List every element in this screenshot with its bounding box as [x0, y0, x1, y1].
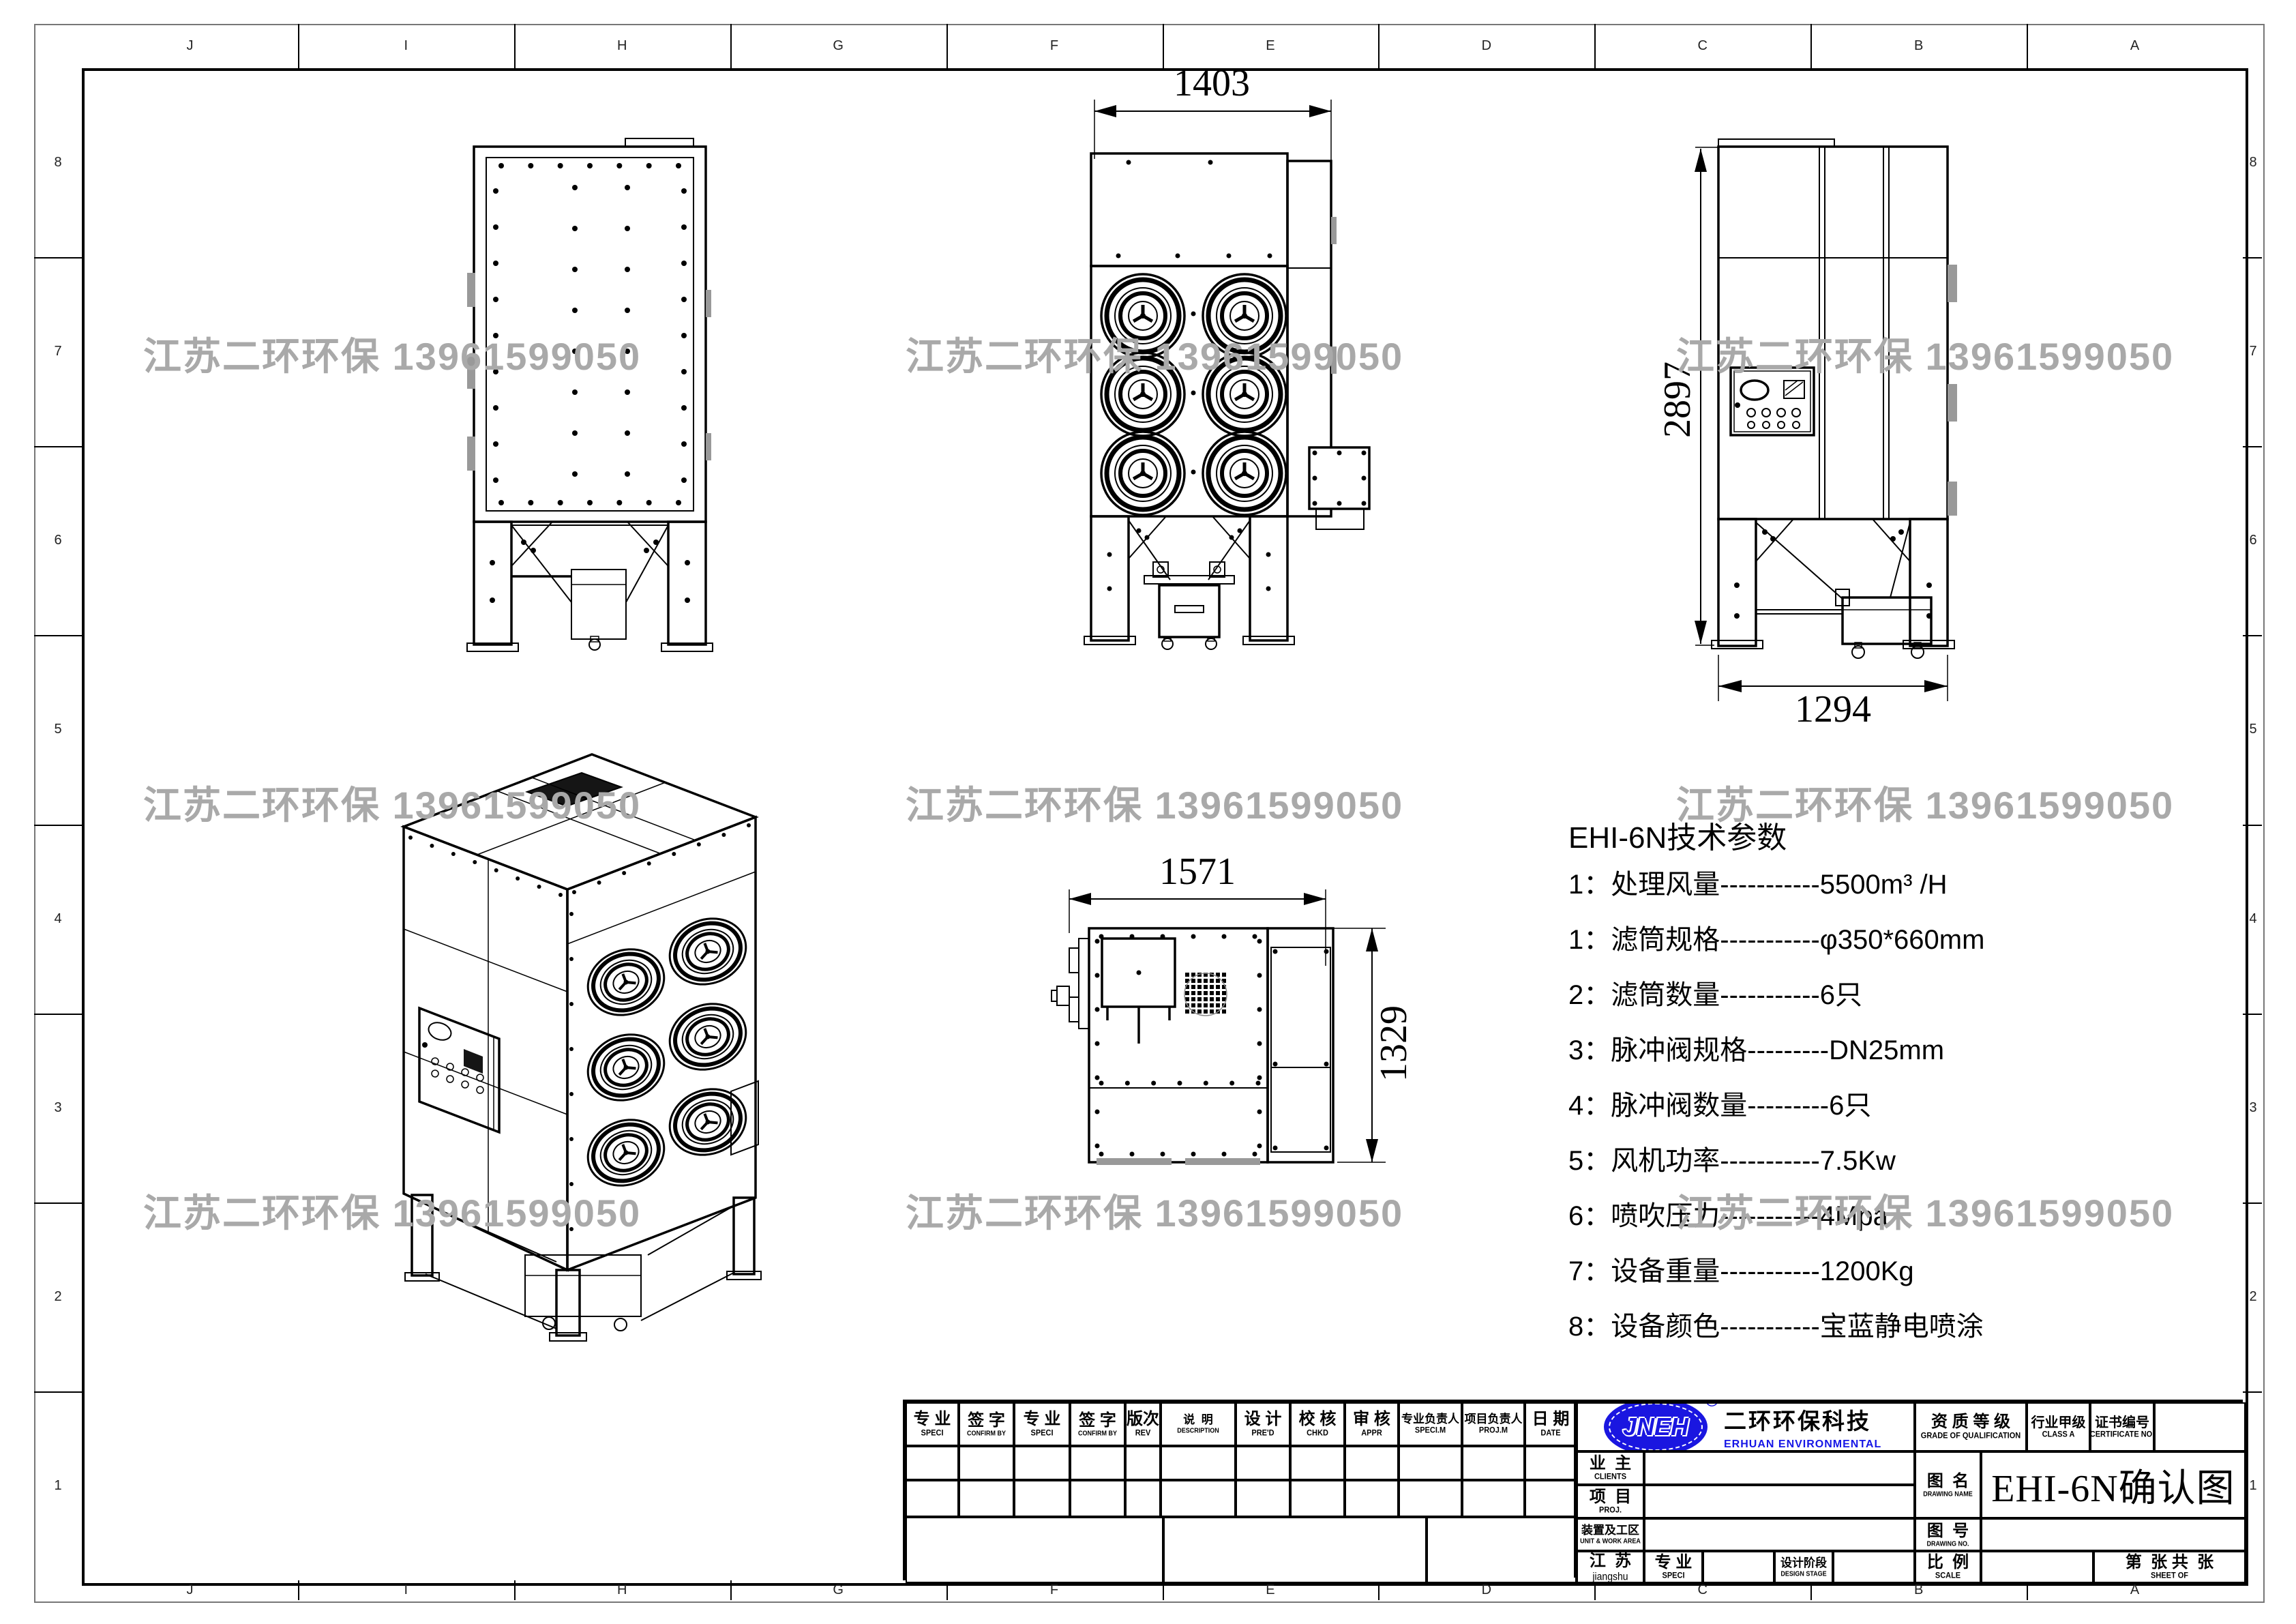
zone-number-left: 8 [34, 68, 82, 257]
rev-col-header: 审 核APPR [1345, 1402, 1399, 1446]
top-dimension-1329 [1272, 928, 1386, 1162]
rev-empty-cell [959, 1446, 1014, 1480]
watermark-text: 江苏二环环保 13961599050 [906, 775, 1403, 830]
iso-control-panel [419, 1008, 499, 1132]
zone-tick [2027, 1580, 2028, 1600]
project-value [1644, 1485, 1915, 1518]
zone-letter-bottom: I [298, 1581, 514, 1599]
zone-letter-bottom: B [1810, 1581, 2027, 1599]
gauge-icon [1741, 381, 1768, 400]
zone-letter-bottom: E [1163, 1581, 1379, 1599]
zone-number-right: 1 [2244, 1391, 2262, 1580]
zone-number-left: 3 [34, 1014, 82, 1202]
zone-number-right: 6 [2244, 446, 2262, 635]
registered-mark-icon: ® [1705, 1402, 1718, 1411]
qualification-cell: 资 质 等 级 GRADE OF QUALIFICATION [1915, 1402, 2027, 1451]
zone-number-right: 2 [2244, 1202, 2262, 1391]
zone-number-left: 4 [34, 825, 82, 1014]
rear-top-tab [625, 138, 694, 147]
zone-letter-bottom: J [82, 1581, 298, 1599]
dim-front-width: 1403 [1130, 63, 1294, 104]
top-main-body [1089, 928, 1268, 1162]
rev-empty-cell [1525, 1480, 1577, 1517]
top-right-column [1268, 928, 1333, 1162]
speci-value [1703, 1551, 1774, 1583]
design-stage-label: 设计阶段 DESIGN STAGE [1774, 1551, 1833, 1583]
rev-col-en: CHKD [1307, 1428, 1328, 1438]
zone-tick [298, 24, 299, 68]
drawing-no-label: 图 号 DRAWING NO. [1915, 1518, 1981, 1551]
rear-legs [467, 522, 713, 651]
zone-tick [2243, 825, 2262, 826]
rev-col-en: REV [1135, 1428, 1151, 1438]
iso-filter-face [660, 1078, 756, 1166]
rev-empty-cell [906, 1480, 959, 1517]
rev-col-en: CONFIRM BY [967, 1429, 1006, 1436]
zone-number-left: 7 [34, 257, 82, 446]
zone-letter-bottom: C [1594, 1581, 1810, 1599]
watermark-text: 江苏二环环保 13961599050 [1676, 1183, 2174, 1238]
rev-col-header: 校 核CHKD [1290, 1402, 1345, 1446]
rev-col-header: 签 字CONFIRM BY [959, 1402, 1014, 1446]
zone-tick [34, 1014, 82, 1015]
rear-dust-bin [571, 570, 626, 650]
drawing-name-value: EHI-6N确认图 [1981, 1451, 2246, 1518]
side-hinge-tabs [1948, 265, 1957, 516]
signature-cell [1427, 1517, 1577, 1583]
speci-label: 专 业 SPECI [1644, 1551, 1703, 1583]
zone-tick [1594, 24, 1596, 68]
zone-letter-bottom: D [1378, 1581, 1594, 1599]
tech-param-line: 5：风机功率-----------7.5Kw [1568, 1138, 1896, 1178]
signature-cell [1163, 1517, 1427, 1583]
zone-tick [730, 1580, 732, 1600]
zone-number-left: 6 [34, 446, 82, 635]
signature-cell [906, 1517, 1163, 1583]
zone-number-left: 5 [34, 635, 82, 824]
company-logo: JNEH ® [1604, 1402, 1708, 1451]
class-a-cell: 行业甲级 CLASS A [2027, 1402, 2090, 1451]
side-drawer-bin [1836, 589, 1931, 658]
drawing-sheet: JJIIHHGGFFEEDDCCBBAA8877665544332211 江苏二… [0, 0, 2296, 1624]
rev-col-header: 专 业SPECI [906, 1402, 959, 1446]
zone-letter-top: J [82, 26, 298, 65]
zone-number-left: 2 [34, 1202, 82, 1391]
tech-param-line: 1：滤筒规格-----------φ350*660mm [1568, 917, 1984, 957]
rev-col-zh: 校 核 [1299, 1411, 1337, 1428]
zone-number-right: 8 [2244, 68, 2262, 257]
zone-tick [1163, 1580, 1164, 1600]
rev-col-zh: 设 计 [1244, 1411, 1282, 1428]
filter-cartridge-face [1101, 432, 1184, 515]
bolt-dots [1734, 529, 1932, 619]
rev-empty-cell [1462, 1480, 1525, 1517]
dim-top-depth: 1329 [1373, 962, 1414, 1125]
tech-param-line: 4：脉冲阀数量---------6只 [1568, 1083, 1871, 1123]
rev-col-en: DESCRIPTION [1177, 1427, 1219, 1434]
rev-col-zh: 专 业 [914, 1411, 951, 1428]
rev-empty-cell [1462, 1446, 1525, 1480]
company-name-en: ERHUAN ENVIRONMENTAL [1724, 1438, 1881, 1451]
zone-tick [730, 24, 732, 68]
watermark-text: 江苏二环环保 13961599050 [906, 326, 1403, 381]
company-name-zh: 二环环保科技 [1724, 1403, 1871, 1436]
clients-label: 业 主 CLIENTS [1577, 1451, 1644, 1485]
region-cell: 江 苏 jiangshu [1577, 1551, 1644, 1583]
rev-col-header: 版次REV [1125, 1402, 1161, 1446]
zone-letter-bottom: G [730, 1581, 946, 1599]
zone-tick [34, 635, 82, 636]
rev-empty-cell [1525, 1446, 1577, 1480]
zone-tick [514, 24, 516, 68]
logo-ring-icon [1609, 1403, 1703, 1451]
zone-tick [34, 825, 82, 826]
watermark-text: 江苏二环环保 13961599050 [906, 1183, 1403, 1238]
unit-work-area-label: 装置及工区 UNIT & WORK AREA [1577, 1518, 1644, 1551]
zone-tick [1378, 1580, 1380, 1600]
side-legs [1712, 519, 1954, 649]
rev-empty-cell [1161, 1446, 1236, 1480]
side-view-drawing [1650, 60, 1991, 742]
zone-tick [1810, 1580, 1812, 1600]
rev-col-en: SPECI [921, 1428, 943, 1438]
zone-letter-top: H [514, 26, 730, 65]
tech-param-line: 3：脉冲阀规格---------DN25mm [1568, 1028, 1944, 1067]
rev-empty-cell [1290, 1446, 1345, 1480]
rev-empty-cell [1236, 1480, 1290, 1517]
zone-tick [2243, 1391, 2262, 1393]
top-left-fittings [1052, 939, 1089, 1029]
tech-param-line: 1：处理风量-----------5500m³ /H [1568, 862, 1948, 902]
rev-col-zh: 说 明 [1183, 1414, 1212, 1427]
rev-col-header: 专业负责人SPECI.M [1399, 1402, 1462, 1446]
rev-col-header: 专 业SPECI [1014, 1402, 1070, 1446]
rev-empty-cell [1399, 1480, 1462, 1517]
zone-tick [2243, 1014, 2262, 1015]
rev-col-header: 说 明DESCRIPTION [1161, 1402, 1236, 1446]
front-hopper [1129, 520, 1250, 580]
watermark-text: 江苏二环环保 13961599050 [1676, 775, 2174, 830]
unit-work-area-value [1644, 1518, 1915, 1551]
rev-empty-cell [959, 1480, 1014, 1517]
iso-filter-face [660, 993, 756, 1080]
sheet-of-cell: 第 张 共 张 SHEET OF [2093, 1551, 2246, 1583]
zone-letter-top: A [2027, 26, 2243, 65]
scale-value [1981, 1551, 2093, 1583]
rev-empty-cell [1399, 1446, 1462, 1480]
zone-tick [34, 1202, 82, 1204]
zone-tick [2243, 635, 2262, 636]
iso-filter-face [578, 1024, 674, 1111]
scale-label: 比 例 SCALE [1915, 1551, 1981, 1583]
tech-param-line: 7：设备重量-----------1200Kg [1568, 1249, 1914, 1288]
rev-col-en: CONFIRM BY [1078, 1429, 1117, 1436]
rev-col-header: 项目负责人PROJ.M [1462, 1402, 1525, 1446]
rev-col-zh: 日 期 [1532, 1411, 1570, 1428]
zone-tick [34, 257, 82, 259]
zone-tick [298, 1580, 299, 1600]
zone-letter-top: D [1378, 26, 1594, 65]
rev-empty-cell [1014, 1446, 1070, 1480]
rev-col-en: PROJ.M [1479, 1426, 1508, 1435]
rev-empty-cell [1014, 1480, 1070, 1517]
rear-hopper [511, 525, 668, 602]
zone-letter-top: I [298, 26, 514, 65]
zone-tick [34, 1391, 82, 1393]
zone-tick [2243, 446, 2262, 447]
watermark-text: 江苏二环环保 13961599050 [1676, 326, 2174, 381]
watermark-text: 江苏二环环保 13961599050 [143, 326, 641, 381]
zone-tick [2027, 24, 2028, 68]
iso-filter-face [578, 939, 674, 1026]
zone-tick [1594, 1580, 1596, 1600]
bolt-dots [1095, 934, 1329, 1157]
zone-number-right: 7 [2244, 257, 2262, 446]
rev-col-zh: 版次 [1127, 1411, 1159, 1428]
rev-empty-cell [1345, 1480, 1399, 1517]
front-legs [1084, 516, 1294, 645]
rev-col-zh: 项目负责人 [1465, 1413, 1523, 1426]
zone-tick [946, 1580, 948, 1600]
certificate-cell: 证书编号 CERTIFICATE NO. [2090, 1402, 2154, 1451]
zone-tick [2243, 1202, 2262, 1204]
rev-col-en: DATE [1540, 1428, 1560, 1438]
rev-col-header: 日 期DATE [1525, 1402, 1577, 1446]
rev-empty-cell [1236, 1446, 1290, 1480]
rev-empty-cell [1070, 1480, 1125, 1517]
iso-left-seams [404, 859, 567, 1233]
project-label: 项 目 PROJ. [1577, 1485, 1644, 1518]
zone-number-left: 1 [34, 1391, 82, 1580]
rear-view-drawing [464, 133, 716, 658]
rev-empty-cell [1345, 1446, 1399, 1480]
rev-empty-cell [1125, 1480, 1161, 1517]
front-dust-bin-cart [1144, 562, 1234, 649]
zone-number-right: 3 [2244, 1014, 2262, 1202]
zone-number-right: 4 [2244, 825, 2262, 1014]
front-dimension-1403 [1094, 100, 1331, 169]
clients-value [1644, 1451, 1915, 1485]
watermark-text: 江苏二环环保 13961599050 [143, 1183, 641, 1238]
zone-tick [2243, 257, 2262, 259]
rev-col-en: PRE'D [1251, 1428, 1274, 1438]
rev-col-zh: 专 业 [1024, 1411, 1061, 1428]
rev-col-en: SPECI [1030, 1428, 1053, 1438]
front-plenum [1091, 153, 1287, 266]
panel-buttons [1747, 409, 1800, 428]
rev-col-en: SPECI.M [1415, 1426, 1446, 1435]
tech-param-line: 8：设备颜色-----------宝蓝静电喷涂 [1568, 1304, 1984, 1344]
rev-col-en: APPR [1361, 1428, 1382, 1438]
iso-filter-cartridges [578, 908, 756, 1196]
top-view-drawing [1037, 846, 1425, 1173]
drawing-no-value [1981, 1518, 2246, 1551]
bolt-dots [490, 163, 690, 603]
design-stage-value [1833, 1551, 1915, 1583]
tech-param-line: 2：滤筒数量-----------6只 [1568, 973, 1862, 1012]
rev-empty-cell [1070, 1446, 1125, 1480]
top-access-panel [1102, 939, 1175, 1044]
rev-col-zh: 审 核 [1353, 1411, 1390, 1428]
zone-letter-bottom: H [514, 1581, 730, 1599]
rev-empty-cell [1125, 1446, 1161, 1480]
zone-letter-top: G [730, 26, 946, 65]
rev-empty-cell [906, 1446, 959, 1480]
zone-letter-bottom: F [946, 1581, 1163, 1599]
filter-cartridge-face [1203, 432, 1286, 515]
dim-side-width: 1294 [1751, 689, 1915, 730]
empty-cell [2154, 1402, 2246, 1451]
rev-empty-cell [1161, 1480, 1236, 1517]
zone-tick [34, 446, 82, 447]
zone-tick [946, 24, 948, 68]
drawing-name-label: 图 名 DRAWING NAME [1915, 1451, 1981, 1518]
zone-number-right: 5 [2244, 635, 2262, 824]
rev-col-zh: 签 字 [968, 1412, 1005, 1430]
zone-tick [514, 1580, 516, 1600]
title-block: 专 业SPECI签 字CONFIRM BY专 业SPECI签 字CONFIRM … [903, 1400, 2243, 1580]
iso-filter-face [660, 908, 756, 995]
zone-letter-bottom: A [2027, 1581, 2243, 1599]
rev-col-header: 设 计PRE'D [1236, 1402, 1290, 1446]
company-logo-cell: JNEH ® 二环环保科技 ERHUAN ENVIRONMENTAL [1577, 1402, 1915, 1451]
rev-col-zh: 专业负责人 [1401, 1413, 1459, 1426]
watermark-text: 江苏二环环保 13961599050 [143, 775, 641, 830]
signature-area-divider [906, 1516, 1577, 1518]
rev-col-header: 签 字CONFIRM BY [1070, 1402, 1125, 1446]
rev-empty-cell [1290, 1480, 1345, 1517]
rev-col-zh: 签 字 [1079, 1412, 1116, 1430]
dim-top-width: 1571 [1116, 851, 1279, 892]
